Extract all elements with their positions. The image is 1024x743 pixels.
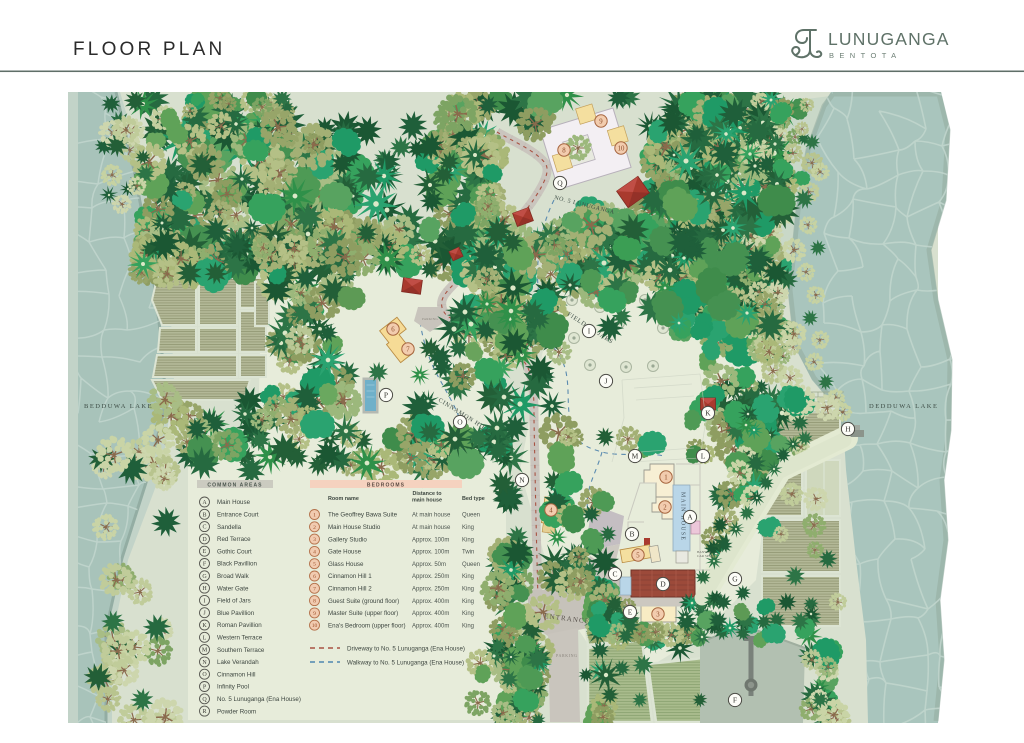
svg-text:Broad Walk: Broad Walk	[217, 573, 250, 580]
svg-text:Approx. 400m: Approx. 400m	[412, 599, 449, 605]
svg-text:PARKING: PARKING	[422, 317, 438, 321]
svg-text:Southern Terrace: Southern Terrace	[217, 647, 265, 654]
svg-text:At main house: At main house	[412, 525, 451, 531]
svg-text:C: C	[202, 525, 206, 531]
svg-text:Guest Suite (ground floor): Guest Suite (ground floor)	[328, 598, 399, 605]
svg-text:A: A	[687, 513, 693, 522]
svg-text:K: K	[705, 409, 711, 418]
svg-text:9: 9	[599, 118, 603, 125]
svg-text:Main House: Main House	[217, 499, 251, 506]
svg-text:Black Pavillion: Black Pavillion	[217, 561, 257, 568]
svg-text:King: King	[462, 611, 474, 617]
svg-text:DEDDUWA LAKE: DEDDUWA LAKE	[869, 403, 938, 410]
svg-text:Roman Pavillion: Roman Pavillion	[217, 622, 262, 629]
svg-text:Cinnamon Hill: Cinnamon Hill	[217, 671, 256, 678]
svg-text:Glass House: Glass House	[328, 561, 364, 568]
svg-text:King: King	[462, 525, 474, 531]
svg-text:B: B	[202, 512, 206, 518]
svg-text:Approx. 100m: Approx. 100m	[412, 537, 449, 543]
svg-text:D: D	[202, 537, 207, 543]
svg-text:C: C	[612, 570, 617, 579]
svg-text:3: 3	[313, 537, 316, 543]
svg-text:L: L	[701, 452, 706, 461]
svg-text:main house: main house	[412, 498, 442, 504]
svg-text:King: King	[462, 599, 474, 605]
svg-text:6: 6	[391, 326, 395, 333]
svg-text:Powder Room: Powder Room	[217, 708, 256, 715]
svg-text:Approx. 50m: Approx. 50m	[412, 562, 446, 568]
svg-text:Approx. 400m: Approx. 400m	[412, 623, 449, 629]
svg-text:Distance to: Distance to	[412, 491, 442, 497]
svg-text:Western Terrace: Western Terrace	[217, 635, 263, 642]
svg-text:B: B	[629, 530, 634, 539]
svg-text:E: E	[628, 608, 633, 617]
svg-text:5: 5	[313, 562, 316, 568]
svg-text:Gothic Court: Gothic Court	[217, 548, 252, 555]
svg-text:Ena's Bedroom (upper floor): Ena's Bedroom (upper floor)	[328, 622, 406, 629]
svg-text:D: D	[660, 580, 666, 589]
svg-text:2: 2	[663, 504, 667, 511]
svg-text:Sandella: Sandella	[217, 524, 242, 531]
svg-text:Approx. 250m: Approx. 250m	[412, 574, 449, 580]
svg-text:Lake Verandah: Lake Verandah	[217, 659, 259, 666]
svg-text:Q: Q	[557, 179, 563, 188]
svg-text:7: 7	[406, 346, 410, 353]
svg-text:BEDDUWA LAKE: BEDDUWA LAKE	[84, 403, 153, 410]
svg-text:CAR SPOT: CAR SPOT	[697, 554, 714, 558]
svg-text:Blue Pavillion: Blue Pavillion	[217, 610, 255, 617]
svg-text:PARKING: PARKING	[556, 653, 578, 658]
svg-text:Approx. 250m: Approx. 250m	[412, 587, 449, 593]
svg-text:King: King	[462, 537, 474, 543]
svg-text:8: 8	[562, 147, 566, 154]
svg-text:LUNUGANGA: LUNUGANGA	[828, 29, 950, 49]
svg-text:N: N	[202, 660, 207, 666]
svg-text:BEDROOMS: BEDROOMS	[367, 483, 405, 489]
svg-text:King: King	[462, 574, 474, 580]
svg-text:L: L	[203, 635, 207, 641]
svg-text:Cinnamon Hill 1: Cinnamon Hill 1	[328, 573, 372, 580]
svg-text:G: G	[732, 575, 738, 584]
svg-text:BENTOTA: BENTOTA	[829, 51, 902, 60]
svg-text:Q: Q	[202, 697, 207, 703]
svg-text:6: 6	[313, 574, 316, 580]
svg-text:1: 1	[664, 474, 667, 481]
svg-text:Driveway to No. 5 Lunuganga (E: Driveway to No. 5 Lunuganga (Ena House)	[347, 646, 465, 653]
svg-text:1: 1	[313, 513, 316, 519]
svg-text:O: O	[202, 672, 207, 678]
svg-text:Bed type: Bed type	[462, 496, 485, 502]
svg-text:I: I	[204, 598, 206, 604]
svg-text:The Geoffrey Bawa Suite: The Geoffrey Bawa Suite	[328, 512, 398, 519]
svg-text:Field of Jars: Field of Jars	[217, 598, 251, 605]
svg-text:9: 9	[313, 611, 316, 617]
svg-text:Twin: Twin	[462, 550, 474, 556]
svg-text:5: 5	[636, 552, 640, 559]
svg-text:7: 7	[313, 586, 316, 592]
svg-text:8: 8	[313, 599, 316, 605]
svg-text:J: J	[605, 377, 608, 386]
svg-text:King: King	[462, 587, 474, 593]
svg-text:FLOOR PLAN: FLOOR PLAN	[73, 39, 225, 60]
svg-text:4: 4	[313, 549, 316, 555]
svg-text:No. 5 Lunuganga (Ena House): No. 5 Lunuganga (Ena House)	[217, 696, 301, 703]
svg-text:Water Gate: Water Gate	[217, 585, 249, 592]
svg-text:Approx. 100m: Approx. 100m	[412, 550, 449, 556]
svg-text:F: F	[733, 696, 737, 705]
svg-text:At main house: At main house	[412, 513, 451, 519]
svg-text:H: H	[202, 586, 207, 592]
svg-text:Room name: Room name	[328, 496, 359, 502]
svg-text:4: 4	[549, 507, 553, 514]
svg-text:10: 10	[312, 623, 318, 629]
svg-text:N: N	[519, 476, 525, 485]
svg-text:Queen: Queen	[462, 513, 480, 519]
svg-text:M: M	[202, 648, 208, 654]
svg-text:H: H	[845, 425, 851, 434]
svg-text:Main House Studio: Main House Studio	[328, 524, 381, 531]
svg-text:3: 3	[656, 611, 660, 618]
svg-text:Entrance Court: Entrance Court	[217, 512, 259, 519]
svg-text:COMMON AREAS: COMMON AREAS	[207, 483, 262, 489]
svg-text:O: O	[457, 418, 463, 427]
svg-text:K: K	[202, 623, 207, 629]
svg-text:Red Terrace: Red Terrace	[217, 536, 251, 543]
svg-text:King: King	[462, 623, 474, 629]
svg-text:R: R	[202, 709, 206, 715]
svg-text:Gallery Studio: Gallery Studio	[328, 536, 367, 543]
svg-text:Cinnamon Hill 2: Cinnamon Hill 2	[328, 586, 372, 593]
svg-text:Approx. 400m: Approx. 400m	[412, 611, 449, 617]
svg-text:E: E	[203, 549, 207, 555]
svg-text:M: M	[632, 452, 639, 461]
svg-text:Master Suite (upper floor): Master Suite (upper floor)	[328, 610, 398, 617]
svg-text:Walkway to No. 5 Lunuganga (En: Walkway to No. 5 Lunuganga (Ena House)	[347, 660, 464, 667]
svg-text:10: 10	[618, 145, 625, 152]
svg-text:Gate House: Gate House	[328, 549, 362, 556]
svg-text:A: A	[202, 500, 207, 506]
svg-text:2: 2	[313, 525, 316, 531]
svg-text:Infinity Pool: Infinity Pool	[217, 684, 249, 691]
svg-text:Queen: Queen	[462, 562, 480, 568]
svg-text:G: G	[202, 574, 207, 580]
svg-text:P: P	[384, 391, 388, 400]
